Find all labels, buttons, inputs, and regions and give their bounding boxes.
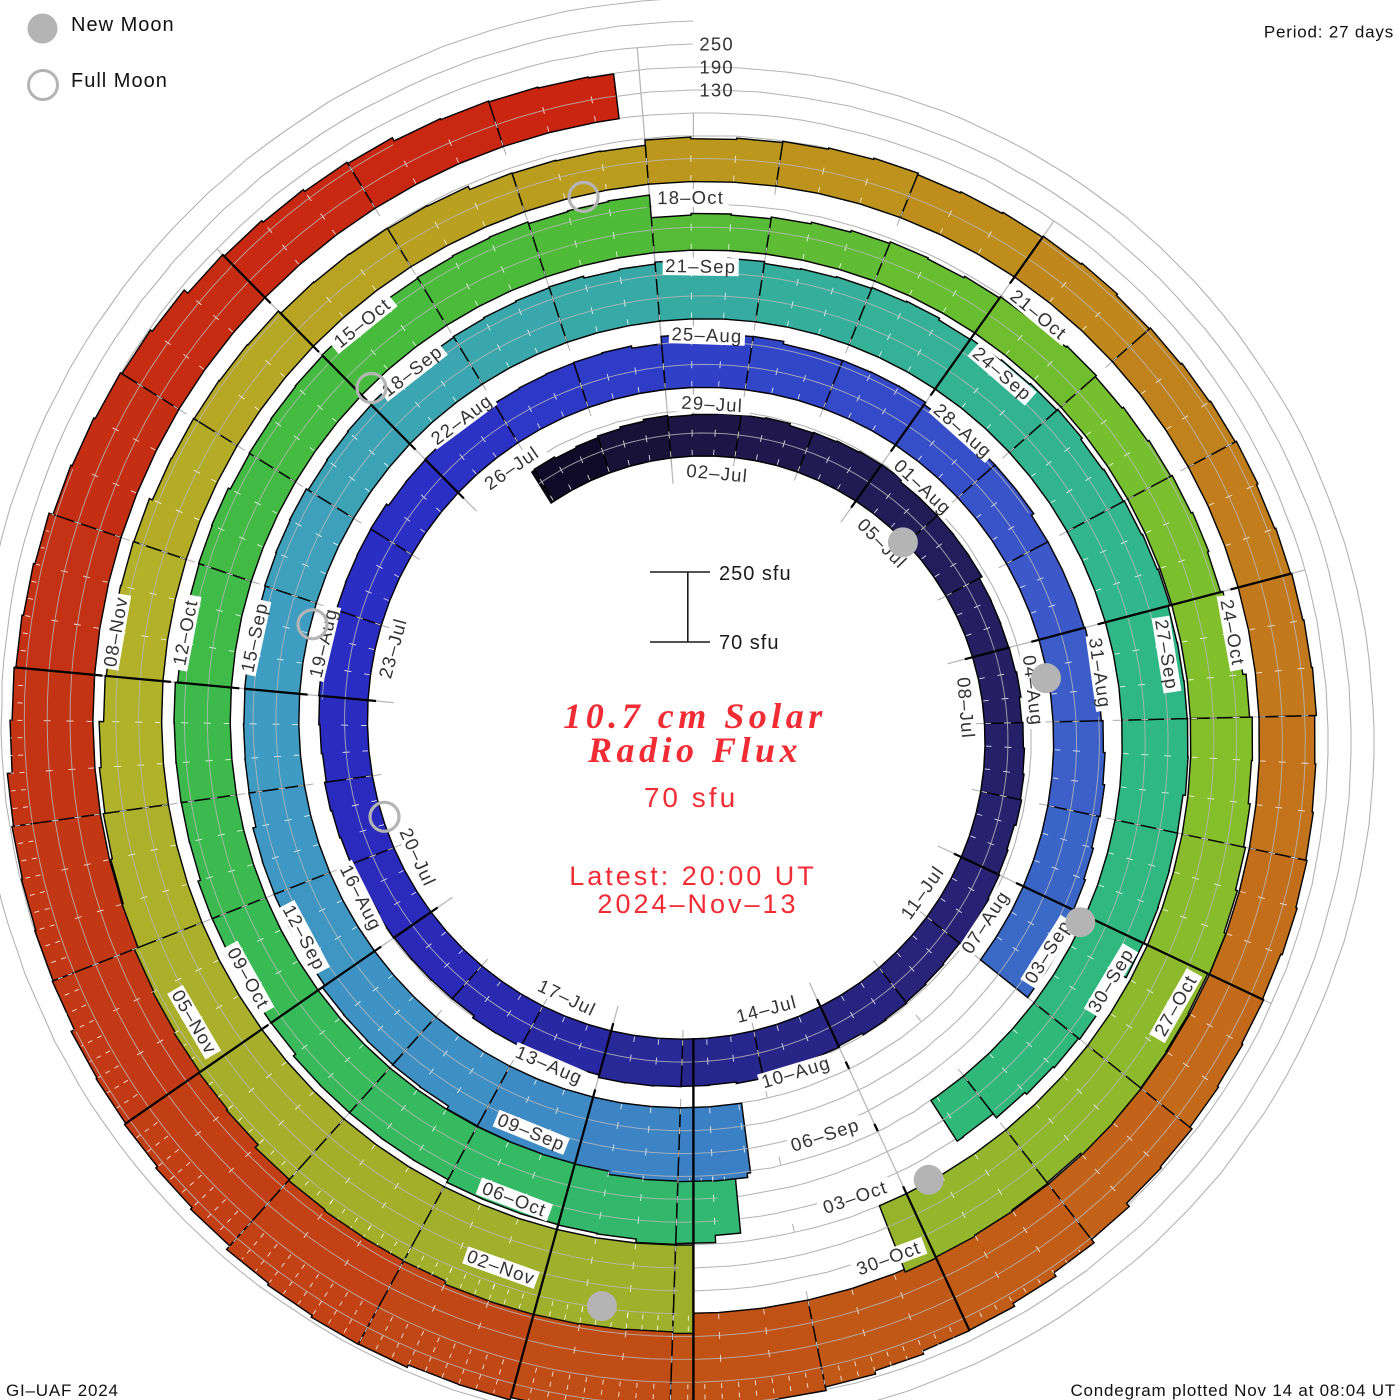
svg-text:New Moon: New Moon [71, 14, 175, 36]
svg-text:Period: 27 days: Period: 27 days [1264, 23, 1394, 42]
svg-text:Full Moon: Full Moon [71, 70, 168, 92]
svg-text:21–Sep: 21–Sep [665, 255, 736, 277]
svg-text:130: 130 [699, 80, 733, 101]
svg-text:18–Oct: 18–Oct [657, 187, 724, 208]
svg-text:Radio Flux: Radio Flux [587, 730, 802, 770]
svg-text:70 sfu: 70 sfu [644, 782, 738, 813]
svg-text:GI–UAF 2024: GI–UAF 2024 [6, 1381, 119, 1400]
svg-text:Condegram plotted Nov 14 at 08: Condegram plotted Nov 14 at 08:04 UT [1070, 1381, 1396, 1400]
svg-text:250: 250 [699, 34, 733, 55]
svg-text:2024–Nov–13: 2024–Nov–13 [597, 889, 798, 919]
svg-text:Latest: 20:00 UT: Latest: 20:00 UT [569, 861, 817, 891]
svg-text:25–Aug: 25–Aug [671, 323, 743, 346]
svg-text:190: 190 [699, 57, 733, 78]
svg-text:250 sfu: 250 sfu [719, 563, 792, 585]
svg-text:70 sfu: 70 sfu [719, 632, 779, 654]
svg-text:29–Jul: 29–Jul [681, 392, 744, 417]
